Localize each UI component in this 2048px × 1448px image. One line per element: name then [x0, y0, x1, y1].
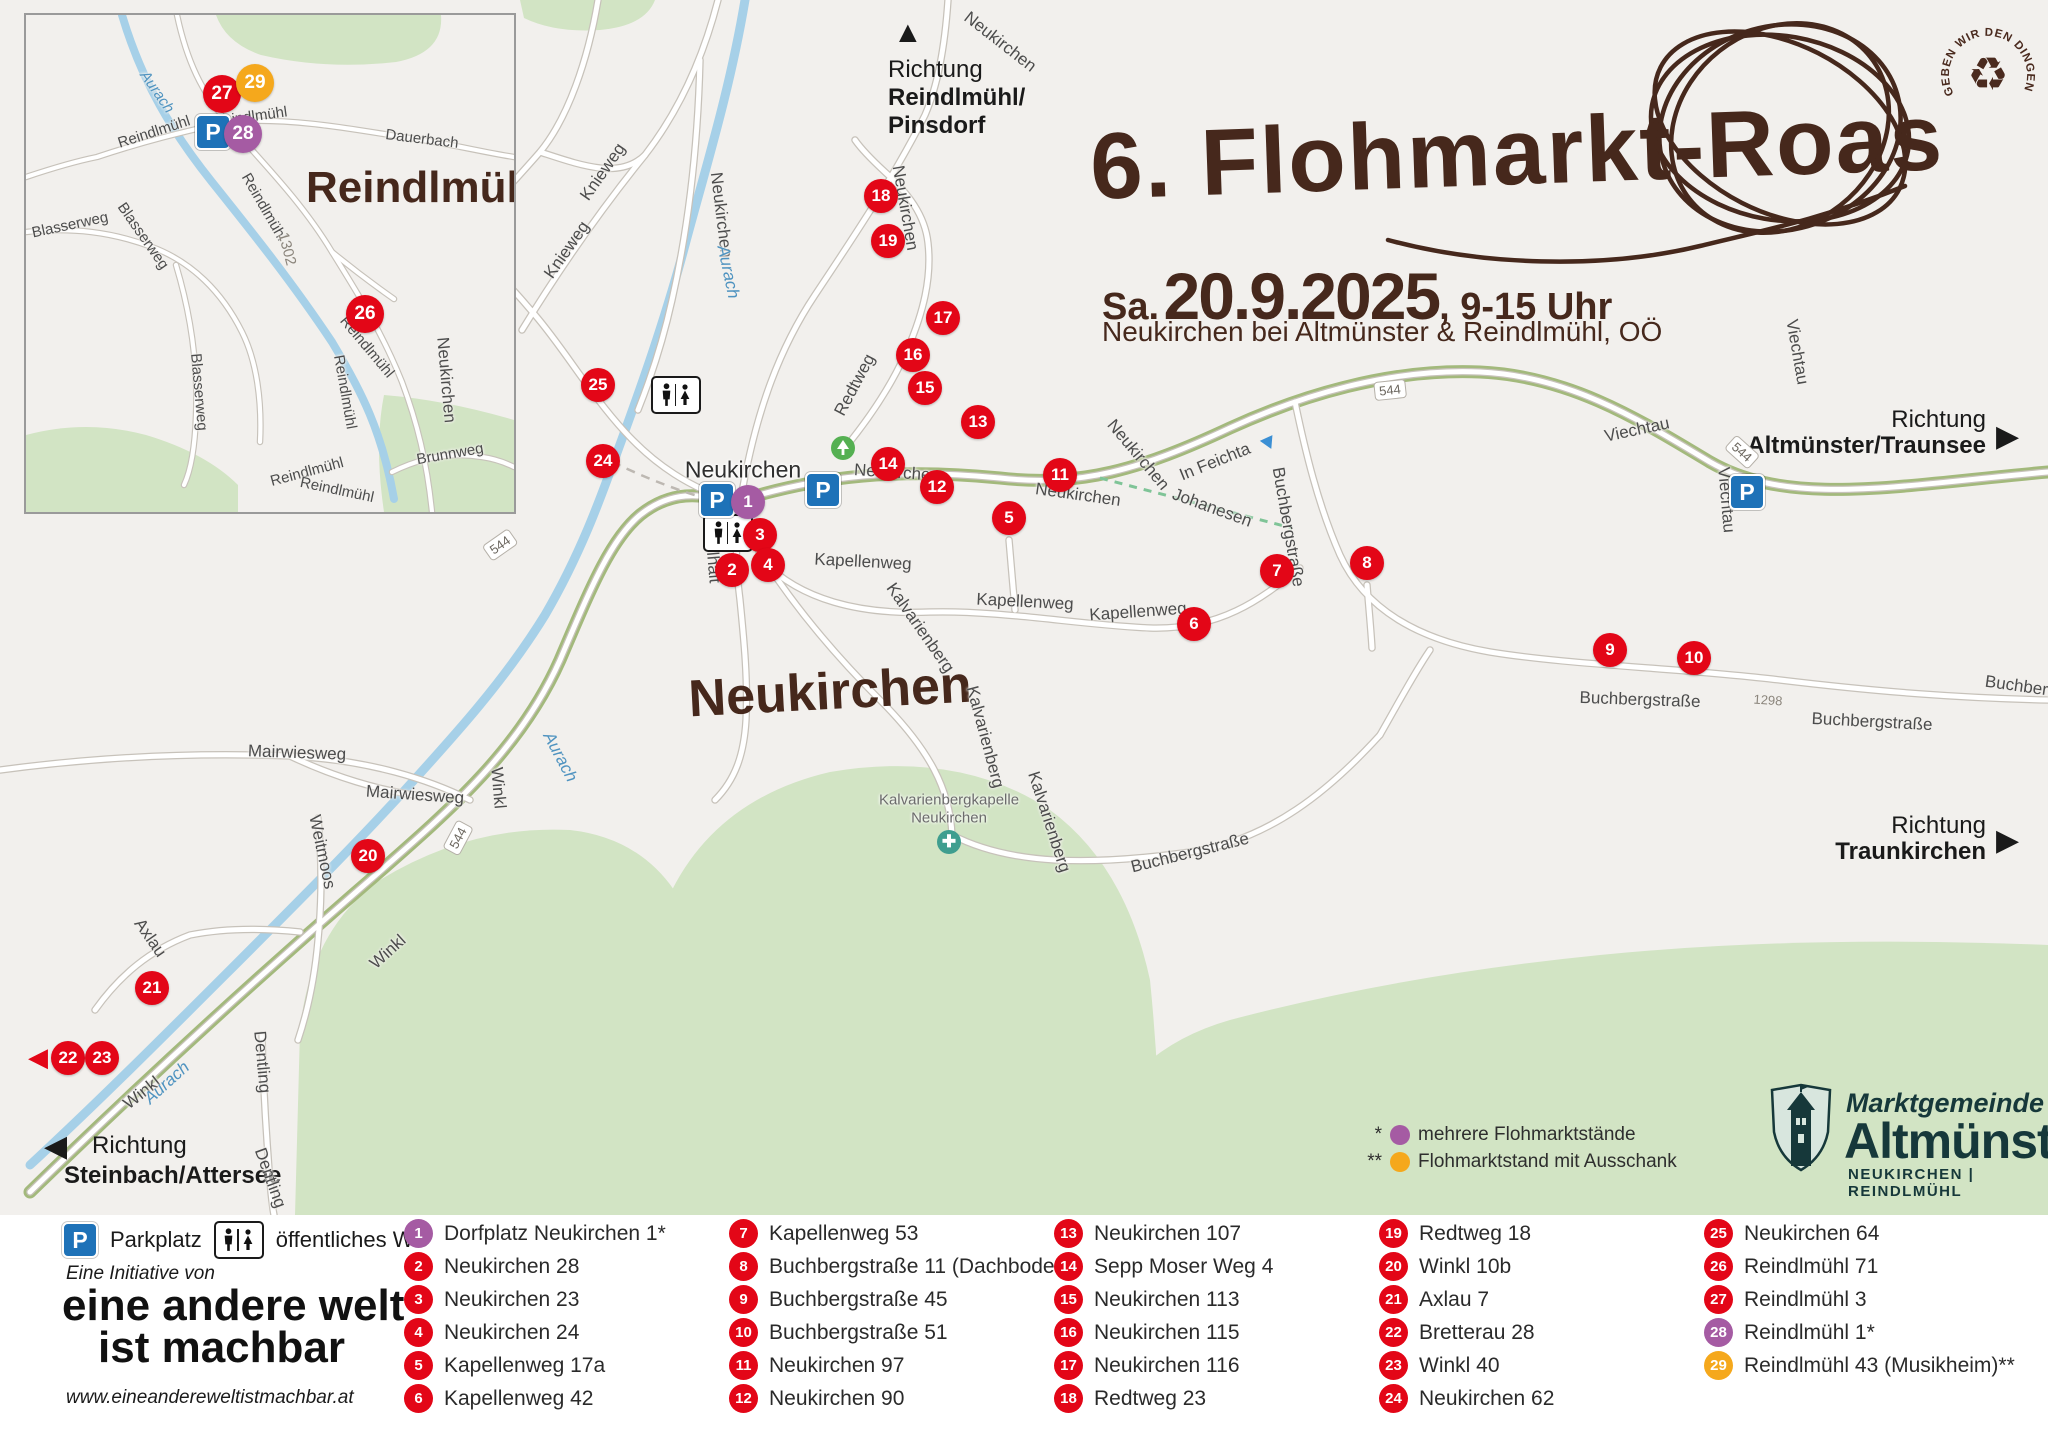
arrow-left-red-icon: ◀ — [28, 1044, 48, 1070]
legend-marker-1: 1 — [404, 1219, 433, 1248]
direction-north-dest2: Pinsdorf — [888, 112, 985, 140]
legend-column: 19Redtweg 1820Winkl 10b21Axlau 722Brette… — [1379, 1219, 1554, 1413]
legend-marker-25: 25 — [1704, 1219, 1733, 1248]
legend-marker-9: 9 — [729, 1285, 758, 1314]
direction-east-word: Richtung — [1891, 406, 1986, 434]
legend-address: Neukirchen 24 — [444, 1321, 579, 1345]
map-marker-5: 5 — [992, 501, 1026, 535]
legend-address: Winkl 40 — [1419, 1354, 1500, 1378]
legend-address: Reindlmühl 3 — [1744, 1288, 1867, 1312]
parking-icon: P — [805, 472, 841, 508]
road-label: Winkl — [486, 766, 510, 809]
route-shield: 544 — [1373, 379, 1407, 401]
map-marker-6: 6 — [1177, 607, 1211, 641]
note-dot-icon — [1390, 1152, 1410, 1172]
note-label: Flohmarktstand mit Ausschank — [1418, 1151, 1677, 1173]
reindlmuehl-inset-map: Reindlmühl ReindlmühlReindlmühlReindlmüh… — [24, 13, 516, 514]
place-label: Neukirchen — [911, 810, 987, 827]
municipality-name: Altmünster — [1844, 1112, 2048, 1170]
direction-southwest-word: Richtung — [92, 1132, 187, 1160]
legend-item: 28Reindlmühl 1* — [1704, 1318, 2015, 1347]
map-marker-7: 7 — [1260, 554, 1294, 588]
legend-marker-28: 28 — [1704, 1318, 1733, 1347]
map-marker-3: 3 — [743, 518, 777, 552]
legend-item: 14Sepp Moser Weg 4 — [1054, 1252, 1273, 1281]
legend-item: 16Neukirchen 115 — [1054, 1318, 1273, 1347]
legend-item: 3Neukirchen 23 — [404, 1285, 666, 1314]
legend-address: Reindlmühl 43 (Musikheim)** — [1744, 1354, 2015, 1378]
legend-address: Kapellenweg 53 — [769, 1222, 918, 1246]
legend-marker-8: 8 — [729, 1252, 758, 1281]
legend-marker-27: 27 — [1704, 1285, 1733, 1314]
legend-marker-6: 6 — [404, 1384, 433, 1413]
legend-marker-14: 14 — [1054, 1252, 1083, 1281]
map-marker-22: 22 — [51, 1041, 85, 1075]
recycle-stamp: GEBEN WIR DEN DINGEN EIN 2. LEBEN ♻ — [1932, 16, 2044, 128]
legend-address: Neukirchen 23 — [444, 1288, 579, 1312]
legend-address: Reindlmühl 71 — [1744, 1255, 1878, 1279]
legend-address: Neukirchen 64 — [1744, 1222, 1879, 1246]
direction-southwest-dest: Steinbach/Attersee — [64, 1162, 281, 1190]
map-marker-9: 9 — [1593, 633, 1627, 667]
legend-address: Neukirchen 116 — [1094, 1354, 1240, 1378]
place-label: Neukirchen — [685, 457, 801, 484]
altmuenster-crest-icon — [1768, 1082, 1834, 1174]
legend-bar: P Parkplatz öffentliches WC Eine Initiat… — [0, 1215, 2048, 1448]
legend-marker-12: 12 — [729, 1384, 758, 1413]
legend-address: Bretterau 28 — [1419, 1321, 1535, 1345]
note-dot-icon — [1390, 1125, 1410, 1145]
map-marker-10: 10 — [1677, 641, 1711, 675]
initiative-url: www.eineandereweltistmachbar.at — [66, 1387, 354, 1409]
legend-item: 20Winkl 10b — [1379, 1252, 1554, 1281]
map-legend-note: *mehrere Flohmarktstände — [1360, 1124, 1636, 1146]
legend-marker-18: 18 — [1054, 1384, 1083, 1413]
legend-address: Reindlmühl 1* — [1744, 1321, 1875, 1345]
road-label: 1298 — [1753, 692, 1783, 709]
map-marker-18: 18 — [864, 179, 898, 213]
legend-item: 23Winkl 40 — [1379, 1351, 1554, 1380]
legend-address: Kapellenweg 42 — [444, 1387, 593, 1411]
legend-item: 18Redtweg 23 — [1054, 1384, 1273, 1413]
legend-marker-10: 10 — [729, 1318, 758, 1347]
map-marker-21: 21 — [135, 971, 169, 1005]
legend-marker-29: 29 — [1704, 1351, 1733, 1380]
legend-marker-4: 4 — [404, 1318, 433, 1347]
arrow-right-icon: ▶ — [1996, 826, 2019, 856]
legend-item: 25Neukirchen 64 — [1704, 1219, 2015, 1248]
legend-item: 1Dorfplatz Neukirchen 1* — [404, 1219, 666, 1248]
legend-address: Buchbergstraße 51 — [769, 1321, 948, 1345]
direction-north-word: Richtung — [888, 56, 983, 84]
legend-marker-15: 15 — [1054, 1285, 1083, 1314]
legend-marker-3: 3 — [404, 1285, 433, 1314]
map-marker-11: 11 — [1043, 458, 1077, 492]
legend-marker-11: 11 — [729, 1351, 758, 1380]
legend-address: Sepp Moser Weg 4 — [1094, 1255, 1273, 1279]
map-marker-14: 14 — [871, 447, 905, 481]
parking-icon: P — [1729, 474, 1765, 510]
legend-address: Dorfplatz Neukirchen 1* — [444, 1222, 666, 1246]
legend-column: 25Neukirchen 6426Reindlmühl 7127Reindlmü… — [1704, 1219, 2015, 1380]
legend-marker-20: 20 — [1379, 1252, 1408, 1281]
legend-marker-2: 2 — [404, 1252, 433, 1281]
legend-marker-26: 26 — [1704, 1252, 1733, 1281]
legend-item: 13Neukirchen 107 — [1054, 1219, 1273, 1248]
legend-marker-24: 24 — [1379, 1384, 1408, 1413]
legend-column: 1Dorfplatz Neukirchen 1*2Neukirchen 283N… — [404, 1219, 666, 1413]
legend-item: 17Neukirchen 116 — [1054, 1351, 1273, 1380]
legend-address: Redtweg 18 — [1419, 1222, 1531, 1246]
legend-marker-22: 22 — [1379, 1318, 1408, 1347]
map-marker-8: 8 — [1350, 546, 1384, 580]
legend-marker-19: 19 — [1379, 1219, 1408, 1248]
initiative-name-line1: eine andere welt — [62, 1285, 404, 1327]
road-label: Buchbergstraße — [1579, 688, 1701, 712]
map-legend-note: **Flohmarktstand mit Ausschank — [1360, 1151, 1677, 1173]
place-label: Kalvarienbergkapelle — [879, 792, 1019, 809]
legend-address: Neukirchen 90 — [769, 1387, 904, 1411]
legend-address: Axlau 7 — [1419, 1288, 1489, 1312]
legend-item: 5Kapellenweg 17a — [404, 1351, 666, 1380]
legend-item: 4Neukirchen 24 — [404, 1318, 666, 1347]
parking-icon: P — [699, 482, 735, 518]
direction-southeast-dest: Traunkirchen — [1835, 838, 1986, 866]
map-marker-15: 15 — [908, 371, 942, 405]
legend-address: Buchbergstraße 11 (Dachboden) — [769, 1255, 1073, 1279]
legend-marker-7: 7 — [729, 1219, 758, 1248]
note-asterisk: ** — [1360, 1151, 1382, 1173]
arrow-right-icon: ▶ — [1996, 422, 2019, 452]
map-marker-20: 20 — [351, 839, 385, 873]
legend-item: 7Kapellenweg 53 — [729, 1219, 1073, 1248]
legend-item: 29Reindlmühl 43 (Musikheim)** — [1704, 1351, 2015, 1380]
legend-item: 10Buchbergstraße 51 — [729, 1318, 1073, 1347]
amenity-legend: P Parkplatz öffentliches WC — [62, 1221, 429, 1259]
municipality-logo: Marktgemeinde Altmünster NEUKIRCHEN | RE… — [1768, 1082, 2044, 1192]
event-subtitle: Neukirchen bei Altmünster & Reindlmühl, … — [1102, 316, 1662, 348]
legend-address: Neukirchen 97 — [769, 1354, 904, 1378]
legend-item: 2Neukirchen 28 — [404, 1252, 666, 1281]
legend-item: 12Neukirchen 90 — [729, 1384, 1073, 1413]
arrow-up-icon: ▲ — [893, 18, 923, 48]
recycle-icon: ♻ — [1967, 48, 2008, 100]
direction-east-dest: Altmünster/Traunsee — [1747, 432, 1986, 460]
map-marker-13: 13 — [961, 405, 995, 439]
legend-marker-23: 23 — [1379, 1351, 1408, 1380]
map-marker-24: 24 — [586, 444, 620, 478]
legend-address: Buchbergstraße 45 — [769, 1288, 948, 1312]
initiative-name-line2: ist machbar — [62, 1327, 404, 1369]
parking-label: Parkplatz — [110, 1227, 202, 1253]
legend-column: 13Neukirchen 10714Sepp Moser Weg 415Neuk… — [1054, 1219, 1273, 1413]
direction-southeast-word: Richtung — [1891, 812, 1986, 840]
legend-item: 26Reindlmühl 71 — [1704, 1252, 2015, 1281]
map-marker-17: 17 — [926, 301, 960, 335]
map-marker-12: 12 — [920, 470, 954, 504]
legend-marker-17: 17 — [1054, 1351, 1083, 1380]
map-marker-16: 16 — [896, 338, 930, 372]
legend-item: 8Buchbergstraße 11 (Dachboden) — [729, 1252, 1073, 1281]
municipality-sub: NEUKIRCHEN | REINDLMÜHL — [1848, 1166, 2044, 1200]
map-marker-29: 29 — [236, 64, 274, 102]
map-marker-2: 2 — [715, 553, 749, 587]
map-marker-19: 19 — [871, 224, 905, 258]
map-marker-26: 26 — [346, 295, 384, 333]
map-marker-4: 4 — [751, 548, 785, 582]
road-label: Mairwiesweg — [248, 741, 347, 764]
wc-icon — [651, 376, 701, 414]
legend-item: 27Reindlmühl 3 — [1704, 1285, 2015, 1314]
parking-icon: P — [62, 1222, 98, 1258]
wc-icon — [214, 1221, 264, 1259]
tree-poi-icon — [831, 436, 855, 460]
legend-address: Neukirchen 113 — [1094, 1288, 1240, 1312]
legend-item: 11Neukirchen 97 — [729, 1351, 1073, 1380]
legend-item: 24Neukirchen 62 — [1379, 1384, 1554, 1413]
direction-north-dest1: Reindlmühl/ — [888, 84, 1025, 112]
flyer-page: 6. Flohmarkt-Roas Sa. 20.9.2025, 9-15 Uh… — [0, 0, 2048, 1448]
map-marker-28: 28 — [224, 115, 262, 153]
arrow-left-icon: ◀ — [44, 1132, 67, 1162]
main-map: 6. Flohmarkt-Roas Sa. 20.9.2025, 9-15 Uh… — [0, 0, 2048, 1215]
note-label: mehrere Flohmarktstände — [1418, 1124, 1636, 1146]
legend-item: 15Neukirchen 113 — [1054, 1285, 1273, 1314]
legend-column: 7Kapellenweg 538Buchbergstraße 11 (Dachb… — [729, 1219, 1073, 1413]
legend-address: Neukirchen 62 — [1419, 1387, 1554, 1411]
legend-marker-21: 21 — [1379, 1285, 1408, 1314]
legend-address: Neukirchen 28 — [444, 1255, 579, 1279]
note-asterisk: * — [1360, 1124, 1382, 1146]
legend-address: Winkl 10b — [1419, 1255, 1511, 1279]
legend-marker-16: 16 — [1054, 1318, 1083, 1347]
inset-title: Reindlmühl — [306, 163, 516, 213]
legend-address: Redtweg 23 — [1094, 1387, 1206, 1411]
legend-item: 19Redtweg 18 — [1379, 1219, 1554, 1248]
initiative-name: eine andere welt ist machbar — [62, 1285, 404, 1369]
legend-item: 9Buchbergstraße 45 — [729, 1285, 1073, 1314]
legend-marker-13: 13 — [1054, 1219, 1083, 1248]
legend-item: 6Kapellenweg 42 — [404, 1384, 666, 1413]
legend-marker-5: 5 — [404, 1351, 433, 1380]
legend-item: 21Axlau 7 — [1379, 1285, 1554, 1314]
legend-address: Neukirchen 115 — [1094, 1321, 1240, 1345]
map-marker-23: 23 — [85, 1041, 119, 1075]
legend-item: 22Bretterau 28 — [1379, 1318, 1554, 1347]
chapel-poi-icon: ✚ — [937, 830, 961, 854]
map-marker-1: 1 — [731, 485, 765, 519]
map-marker-25: 25 — [581, 368, 615, 402]
legend-address: Kapellenweg 17a — [444, 1354, 605, 1378]
legend-address: Neukirchen 107 — [1094, 1222, 1241, 1246]
